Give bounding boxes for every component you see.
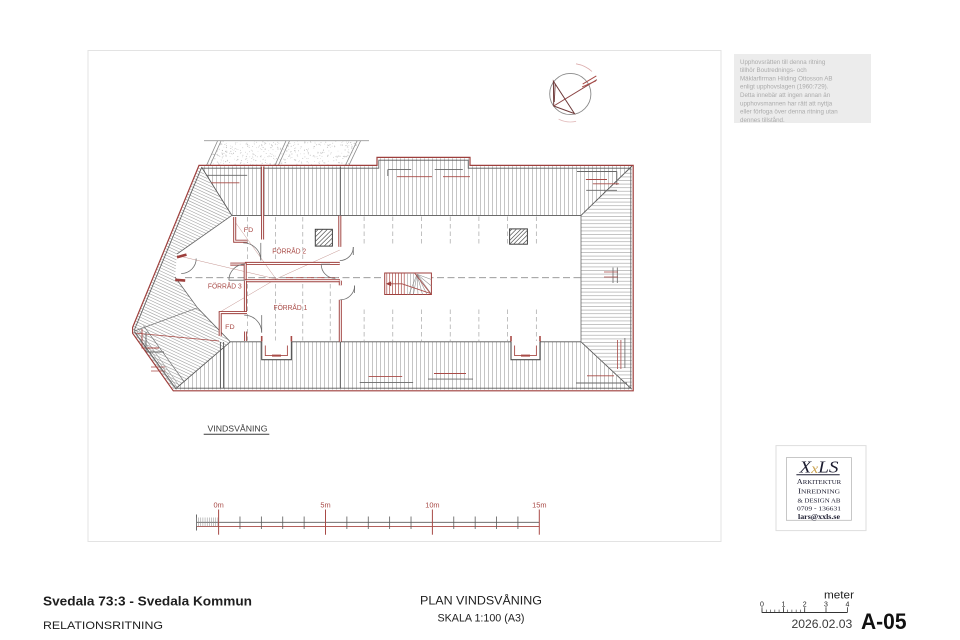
svg-text:FD: FD	[244, 227, 254, 234]
svg-text:10m: 10m	[425, 501, 439, 510]
svg-text:XxLS: XxLS	[798, 458, 838, 477]
svg-text:FÖRRÅD 2: FÖRRÅD 2	[272, 247, 306, 256]
svg-text:A-05: A-05	[861, 609, 907, 634]
svg-text:0709 - 136631: 0709 - 136631	[797, 505, 841, 512]
svg-text:Detta innebär att ingen annan: Detta innebär att ingen annan än	[740, 92, 831, 99]
svg-text:FD: FD	[225, 324, 235, 331]
svg-text:5m: 5m	[320, 501, 330, 510]
svg-text:enligt upphovslagen (1960:729): enligt upphovslagen (1960:729).	[740, 84, 829, 91]
svg-text:eller förfoga över denna ritni: eller förfoga över denna ritning utan	[740, 109, 838, 116]
svg-text:2026.02.03: 2026.02.03	[792, 619, 853, 631]
svg-text:RELATIONSRITNING: RELATIONSRITNING	[43, 620, 163, 632]
svg-text:lars@xxls.se: lars@xxls.se	[798, 514, 840, 521]
svg-text:Mäklarfirman Hilding Ottosson: Mäklarfirman Hilding Ottosson AB	[740, 75, 833, 82]
svg-text:Svedala 73:3 - Svedala Kommun: Svedala 73:3 - Svedala Kommun	[43, 594, 252, 609]
svg-text:SKALA 1:100 (A3): SKALA 1:100 (A3)	[438, 613, 525, 625]
svg-text:ARKITEKTUR: ARKITEKTUR	[797, 478, 842, 486]
svg-text:tillhör Boutrednings- och: tillhör Boutrednings- och	[740, 67, 807, 74]
svg-text:INREDNING: INREDNING	[798, 487, 840, 495]
svg-text:15m: 15m	[532, 501, 546, 510]
svg-text:FÖRRÅD 1: FÖRRÅD 1	[274, 303, 308, 312]
svg-text:& DESIGN AB: & DESIGN AB	[798, 499, 841, 505]
svg-text:meter: meter	[824, 590, 854, 602]
svg-text:dennes tillstånd.: dennes tillstånd.	[740, 117, 785, 124]
svg-text:FÖRRÅD 3: FÖRRÅD 3	[208, 282, 242, 291]
svg-text:upphovsmannen har rätt att nyt: upphovsmannen har rätt att nyttja	[740, 100, 833, 107]
svg-text:Upphovsrätten till denna ritni: Upphovsrätten till denna ritning	[740, 59, 826, 66]
svg-text:0m: 0m	[213, 501, 223, 510]
svg-text:PLAN VINDSVÅNING: PLAN VINDSVÅNING	[420, 594, 542, 608]
svg-text:VINDSVÅNING: VINDSVÅNING	[208, 423, 268, 433]
